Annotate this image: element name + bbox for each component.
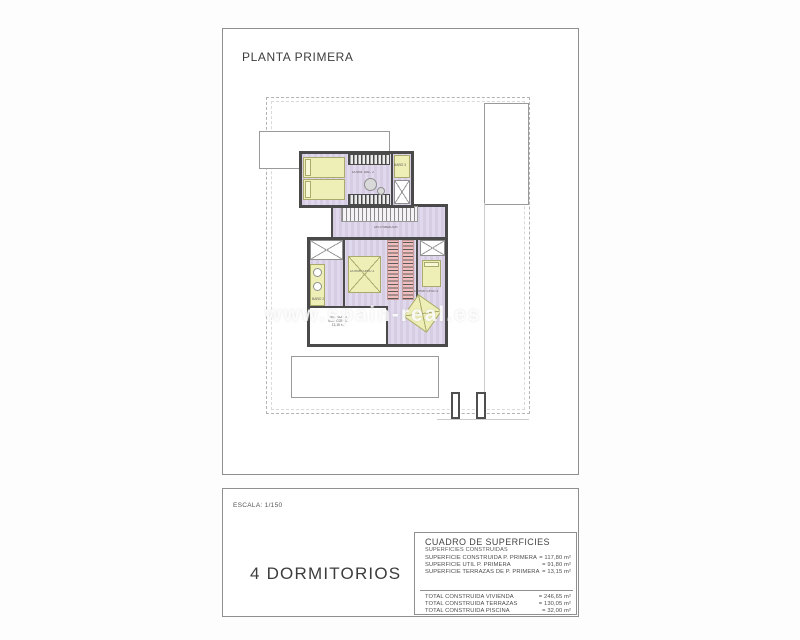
row-value: = 246,65 m² (539, 594, 571, 600)
bed-bedroom3 (348, 256, 381, 293)
chair-round (377, 187, 385, 195)
row-value: = 91,80 m² (542, 562, 571, 568)
row-label: SUPERFICIE TERRAZAS DE P. PRIMERA (425, 569, 540, 575)
bedroom3-label-text: DORMITORIO 3 (350, 270, 374, 273)
surface-table-title: CUADRO DE SUPERFICIES (425, 537, 550, 547)
closet-top-left (310, 240, 343, 260)
pillow (305, 181, 311, 198)
bath2-label: BAÑO 2 (312, 298, 324, 302)
row-value: = 117,80 m² (539, 555, 571, 561)
gate-baseline (437, 419, 529, 420)
row-value: = 13,15 m² (542, 569, 571, 575)
staircase (341, 206, 418, 222)
wardrobe-top (348, 154, 390, 165)
row-value: = 32,00 m² (542, 608, 571, 614)
plan-sheet: { "page": { "title": "PLANTA PRIMERA", "… (0, 0, 800, 640)
table-separator (420, 590, 573, 591)
surface-table-subtitle: SUPERFICIES CONSTRUIDAS (425, 547, 508, 553)
hall-wall-left (331, 206, 333, 239)
bath2-label-text: BAÑO 2 (312, 298, 324, 301)
bedroom3-label: DORMITORIO 3 (350, 270, 374, 274)
sink-2 (313, 282, 322, 291)
closet-top-right (420, 240, 445, 256)
row-label: TOTAL CONSTRUIDA TERRAZAS (425, 601, 517, 607)
exterior-block-top-right (484, 103, 529, 205)
gate-pillar-right (476, 392, 486, 419)
bed-double-left-2 (303, 179, 345, 200)
table-row: SUPERFICIE TERRAZAS DE P. PRIMERA = 13,1… (425, 569, 571, 575)
bedroom2-label: DORM. DBL. 2 (352, 171, 374, 175)
surface-table: CUADRO DE SUPERFICIES SUPERFICIES CONSTR… (414, 532, 577, 615)
row-label: SUPERFICIE CONSTRUIDA P. PRIMERA (425, 555, 537, 561)
pillow (424, 262, 439, 267)
upper-block: DORM. DBL. 2 BAÑO 3 (299, 151, 414, 208)
row-label: SUPERFICIE UTIL P. PRIMERA (425, 562, 511, 568)
row-value: = 130,05 m² (539, 601, 571, 607)
bedroom-count-label: 4 DORMITORIOS (250, 564, 401, 584)
gate-pillar-left (451, 392, 460, 419)
table-row: TOTAL CONSTRUIDA VIVIENDA = 246,65 m² (425, 594, 571, 600)
exterior-line-right (484, 203, 485, 412)
hall-wall-right (445, 204, 448, 239)
hall-label: DISTRIBUIDOR (374, 226, 398, 230)
table-row: TOTAL CONSTRUIDA PISCINA = 32,00 m² (425, 608, 571, 614)
scale-label: ESCALA: 1/150 (233, 502, 282, 509)
hall-label-text: DISTRIBUIDOR (374, 226, 398, 229)
wardrobe-pink-left (387, 240, 399, 300)
lower-block: BAÑO 2 DORMITORIO 3 DORMITORIO 4 TERRAZA… (307, 237, 448, 347)
pillow (305, 159, 311, 176)
watermark: www.spain-real.es (265, 303, 481, 327)
sink-1 (313, 268, 322, 277)
terrace-bottom-left (291, 356, 439, 398)
table-round (364, 178, 377, 191)
bath3-wall (391, 154, 393, 205)
table-row: SUPERFICIE CONSTRUIDA P. PRIMERA = 117,8… (425, 555, 571, 561)
bath3-label: BAÑO 3 (394, 164, 406, 168)
table-row: SUPERFICIE UTIL P. PRIMERA = 91,80 m² (425, 562, 571, 568)
shower-bath3 (394, 180, 410, 204)
bed-double-left-1 (303, 157, 345, 178)
bed-bedroom4 (422, 260, 441, 287)
wardrobe-bottom (348, 194, 390, 205)
bath2-wall (343, 240, 345, 306)
table-row: TOTAL CONSTRUIDA TERRAZAS = 130,05 m² (425, 601, 571, 607)
row-label: TOTAL CONSTRUIDA VIVIENDA (425, 594, 514, 600)
right-wing-top-wall (414, 204, 448, 207)
page-title: PLANTA PRIMERA (242, 50, 354, 64)
row-label: TOTAL CONSTRUIDA PISCINA (425, 608, 510, 614)
bedroom2-label-text: DORM. DBL. 2 (352, 171, 374, 174)
wardrobe-pink-right (402, 240, 414, 300)
bath3-label-text: BAÑO 3 (394, 164, 406, 167)
